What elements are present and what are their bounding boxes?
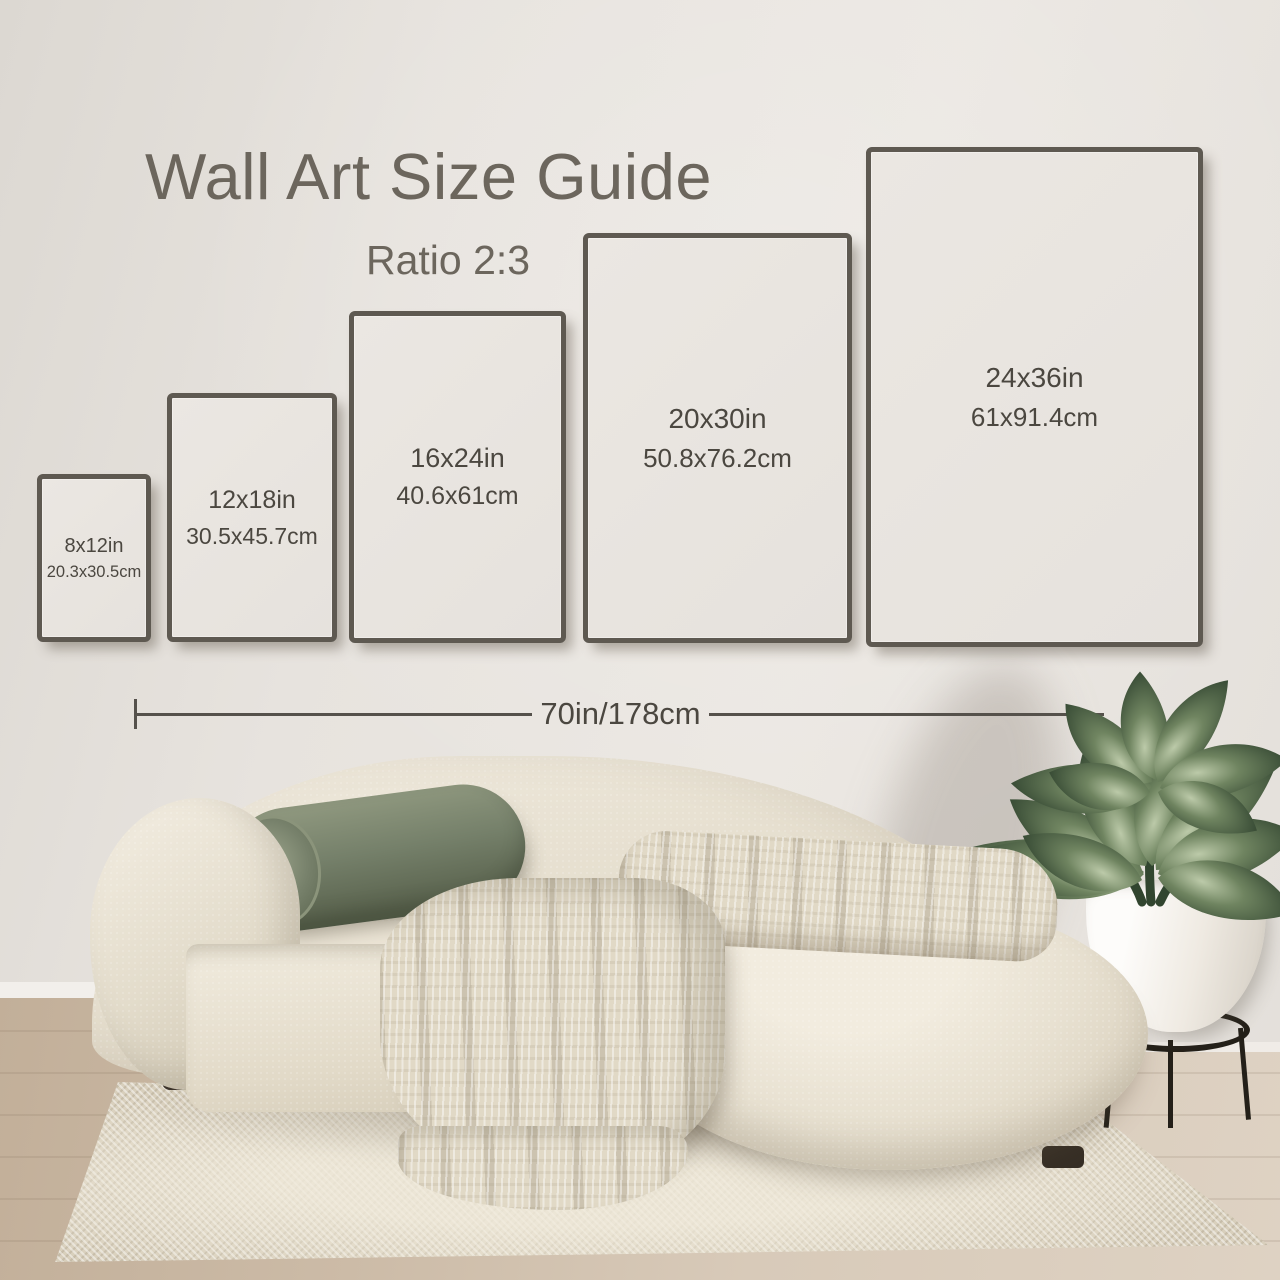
- frame-20x30-cm-label: 50.8x76.2cm: [643, 443, 792, 474]
- frame-16x24-inches-label: 16x24in: [410, 443, 505, 474]
- ratio-subtitle: Ratio 2:3: [366, 237, 530, 284]
- frame-12x18: 12x18in 30.5x45.7cm: [167, 393, 337, 642]
- frame-12x18-cm-label: 30.5x45.7cm: [186, 523, 318, 550]
- frame-20x30: 20x30in 50.8x76.2cm: [583, 233, 852, 643]
- frame-24x36-inches-label: 24x36in: [985, 362, 1083, 394]
- frame-20x30-inches-label: 20x30in: [668, 403, 766, 435]
- frame-16x24-cm-label: 40.6x61cm: [396, 482, 518, 511]
- frame-24x36-cm-label: 61x91.4cm: [971, 402, 1098, 433]
- measurement-label: 70in/178cm: [532, 696, 708, 732]
- wall-art-size-guide-image: Wall Art Size Guide Ratio 2:3 8x12in 20.…: [0, 0, 1280, 1280]
- frame-8x12-cm-label: 20.3x30.5cm: [47, 563, 141, 582]
- frame-12x18-inches-label: 12x18in: [208, 486, 296, 515]
- frame-24x36: 24x36in 61x91.4cm: [866, 147, 1203, 647]
- frame-8x12: 8x12in 20.3x30.5cm: [37, 474, 151, 642]
- measurement-line-left: [137, 713, 532, 716]
- frame-16x24: 16x24in 40.6x61cm: [349, 311, 566, 643]
- page-title: Wall Art Size Guide: [145, 143, 712, 211]
- sofa-foot-right: [1042, 1146, 1084, 1168]
- frame-8x12-inches-label: 8x12in: [65, 535, 124, 558]
